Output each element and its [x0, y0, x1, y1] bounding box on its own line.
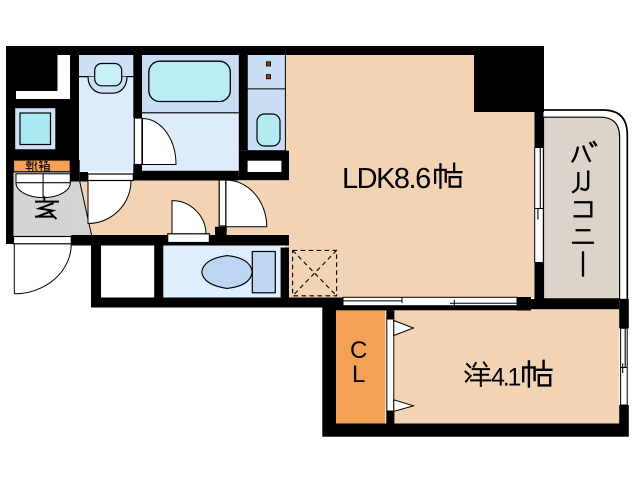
svg-text:L: L: [352, 361, 365, 388]
svg-text:C: C: [350, 337, 367, 364]
svg-text:LDK8.6: LDK8.6: [342, 163, 430, 195]
svg-text:4.1: 4.1: [491, 364, 520, 392]
